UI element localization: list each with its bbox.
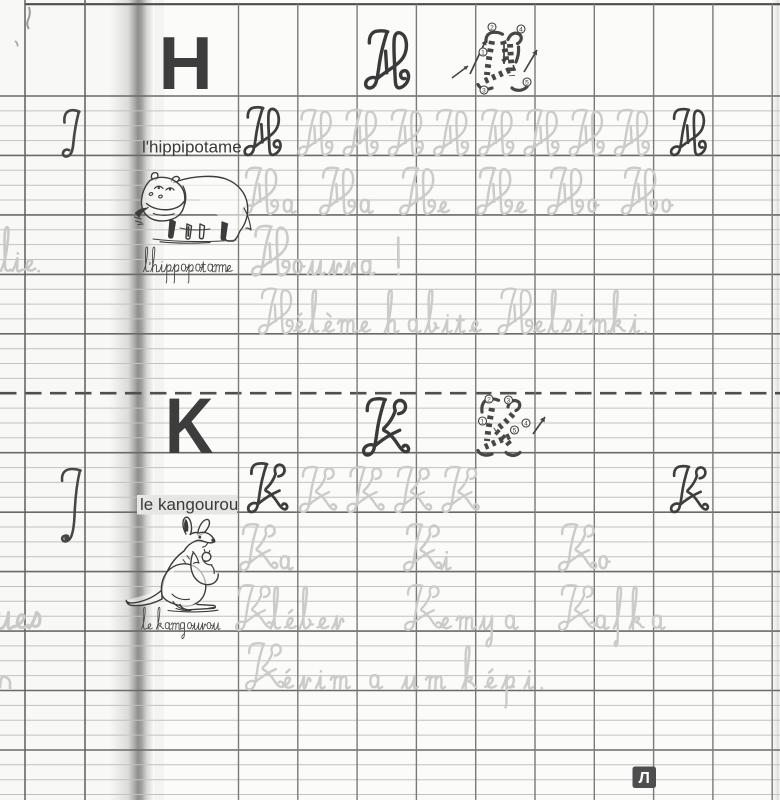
svg-text:1: 1 — [481, 49, 485, 56]
svg-text:l'hippipotame: l'hippipotame — [142, 138, 242, 157]
svg-text:Л: Л — [639, 770, 650, 787]
svg-text:2: 2 — [490, 24, 494, 31]
svg-text:H: H — [159, 21, 213, 105]
svg-text:5: 5 — [513, 427, 517, 434]
svg-text:1: 1 — [481, 418, 485, 425]
svg-text:le kangourou: le kangourou — [140, 495, 238, 514]
svg-text:3: 3 — [482, 87, 486, 94]
svg-text:5: 5 — [525, 79, 529, 86]
svg-text:2: 2 — [487, 396, 491, 403]
svg-text:4: 4 — [519, 26, 523, 33]
svg-text:3: 3 — [507, 397, 511, 404]
svg-text:4: 4 — [524, 420, 528, 427]
svg-text:K: K — [165, 382, 214, 470]
